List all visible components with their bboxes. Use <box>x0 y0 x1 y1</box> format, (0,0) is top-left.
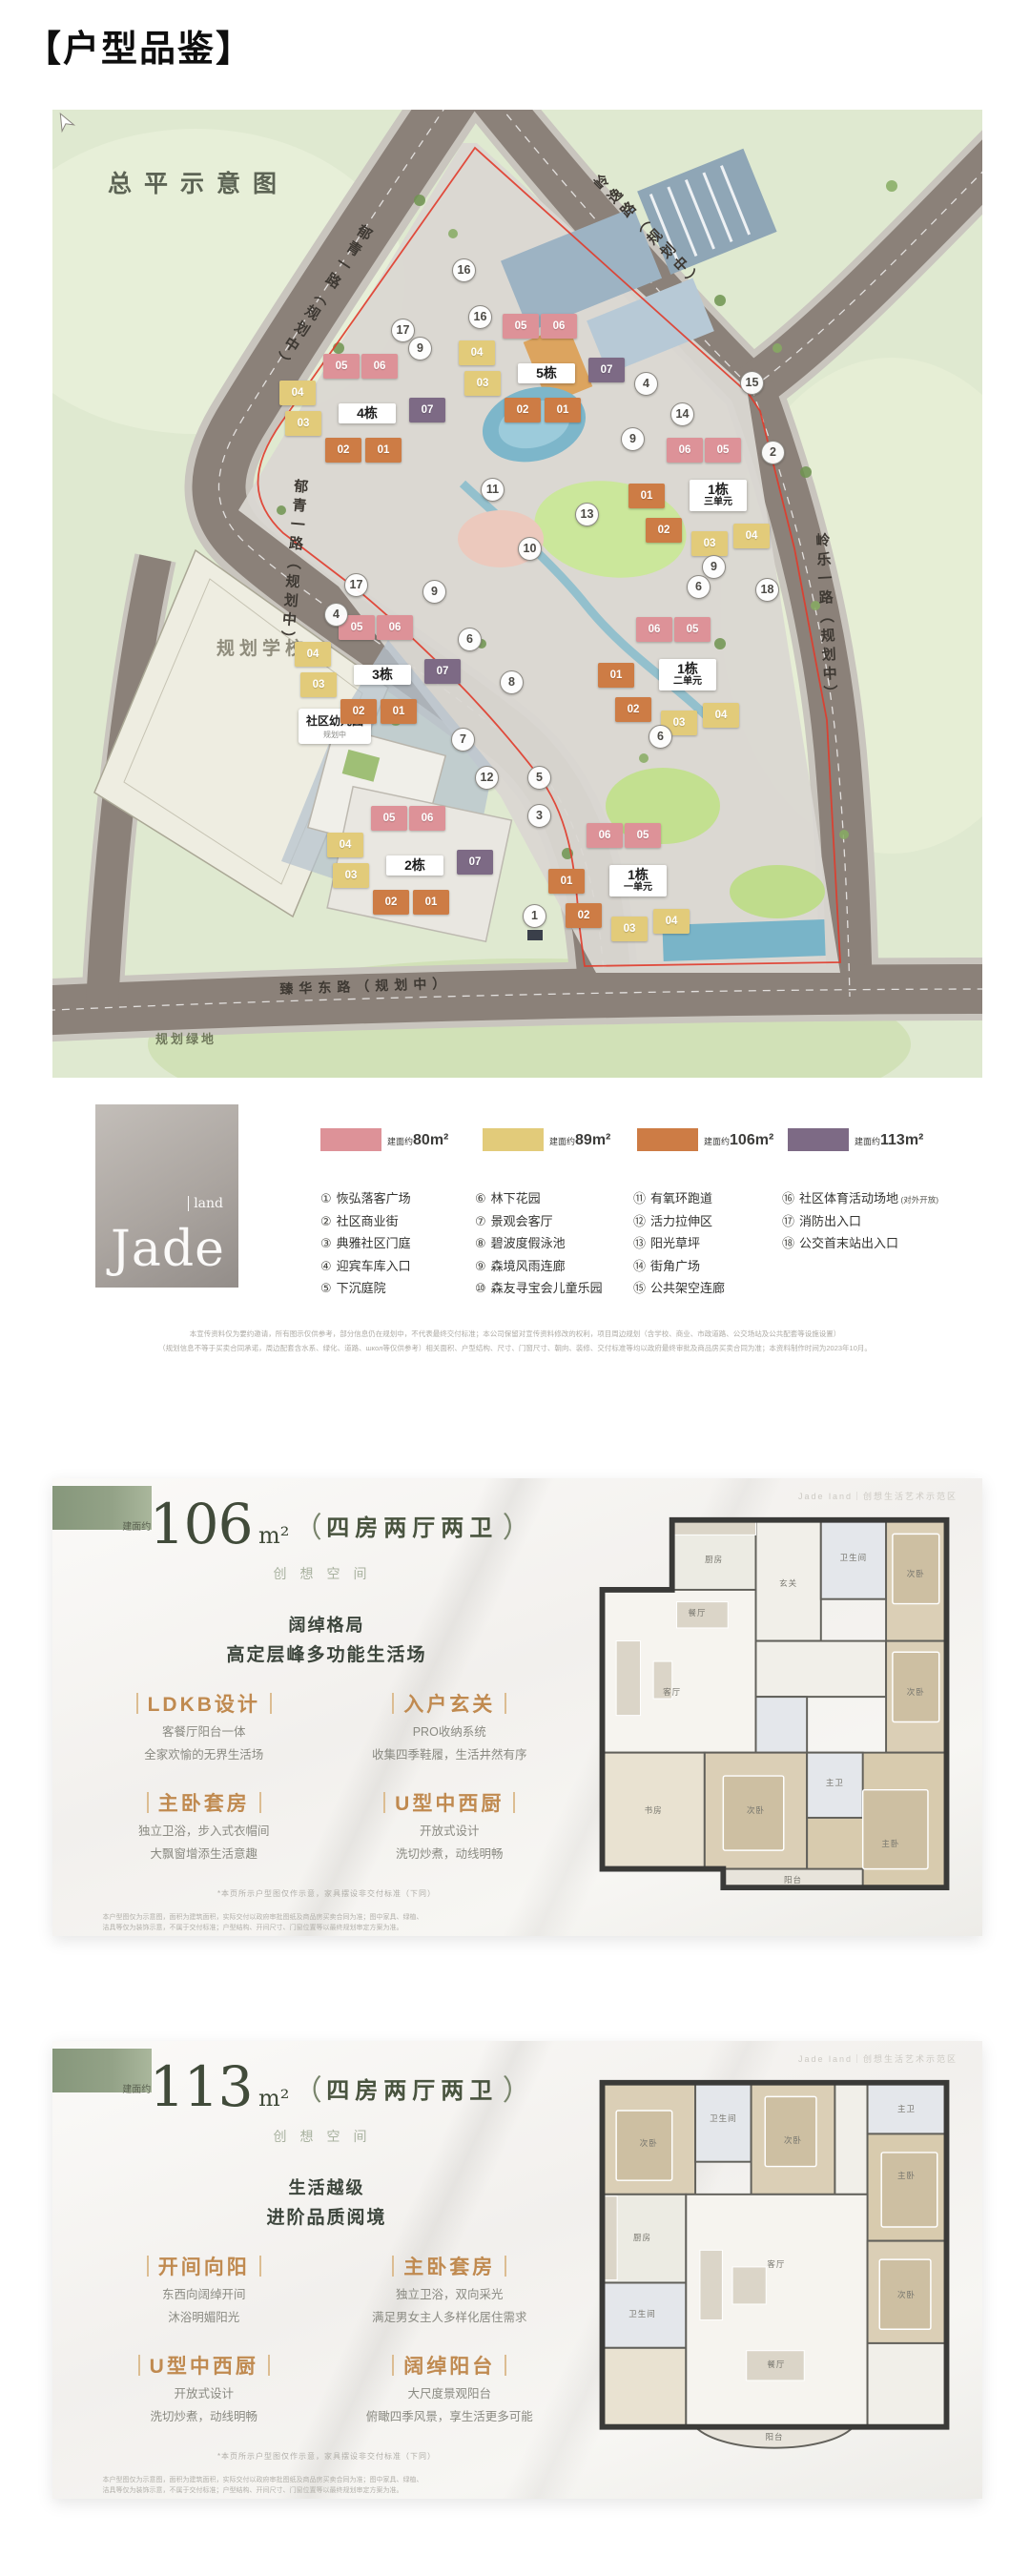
amenity-marker-10: 10 <box>518 537 542 561</box>
room-label-次卧: 次卧 <box>897 2289 916 2300</box>
legend-item-17: ⑰消防出入口 <box>782 1211 861 1229</box>
legend-item-12: ⑫活力拉伸区 <box>633 1211 712 1229</box>
unit-chip-03: 03 <box>285 411 321 436</box>
building-label: 1栋三单元 <box>690 480 747 511</box>
unit-chip-07: 07 <box>457 850 493 875</box>
legend-item-7: ⑦景观会客厅 <box>475 1211 553 1229</box>
unit-chip-03: 03 <box>300 672 337 697</box>
unit-chip-05: 05 <box>674 617 711 642</box>
building-label: 2栋 <box>386 855 443 876</box>
legend-item-4: ④迎宾车库入口 <box>320 1256 411 1274</box>
room-label-主卧: 主卧 <box>881 1838 899 1849</box>
amenity-marker-6: 6 <box>649 725 672 749</box>
room-label-书房: 书房 <box>645 1804 663 1816</box>
building-unit-name: 二单元 <box>663 676 712 688</box>
unit-chip-07: 07 <box>588 358 625 382</box>
unit-chip-04: 04 <box>703 703 739 728</box>
amenity-marker-4: 4 <box>324 603 348 627</box>
building-name: 1栋 <box>613 868 663 882</box>
spec-bracket-open: （ <box>294 2075 322 2107</box>
legend-disclaimer-1: 本宣传资料仅为要约邀请，所有图示仅供参考，部分信息仍在规划中，不代表最终交付标准… <box>105 1328 925 1341</box>
area-value: 113 <box>150 2054 253 2119</box>
unit-chip-06: 06 <box>636 617 672 642</box>
unit-chip-01: 01 <box>598 663 634 688</box>
unit-header: 建面约 106 m² （ 四房两厅两卫 ） <box>81 1492 572 1556</box>
unit-chip-03: 03 <box>333 863 369 888</box>
feature-kitchen: U型中西厨 开放式设计 洗切炒煮，动线明畅 <box>81 2351 327 2425</box>
room-label-阳台: 阳台 <box>784 1874 802 1886</box>
room-label-厨房: 厨房 <box>705 1554 723 1565</box>
unit-chip-05: 05 <box>503 314 539 339</box>
area-swatch-label: 建面约89m² <box>549 1132 610 1149</box>
area-swatch-label: 建面约113m² <box>855 1132 923 1149</box>
unit-chip-04: 04 <box>459 340 495 365</box>
amenity-marker-17: 17 <box>344 573 368 597</box>
unit-chip-01: 01 <box>628 484 665 508</box>
room-label-餐厅: 餐厅 <box>767 2359 785 2370</box>
card-note: *本页所示户型图仅作示意，家具摆设非交付标准（下同） <box>81 2451 572 2462</box>
unit-chip-04: 04 <box>653 909 690 934</box>
unit-chip-02: 02 <box>373 890 409 915</box>
area-label: 规划绿地 <box>155 1029 216 1047</box>
unit-card-113: Jade land｜创想生活艺术示范区 建面约 113 m² （ 四房两厅两卫 … <box>52 2041 982 2499</box>
unit-chip-04: 04 <box>279 381 316 405</box>
unit-chip-02: 02 <box>615 697 651 722</box>
amenity-marker-15: 15 <box>740 371 764 395</box>
legend-item-3: ③典雅社区门庭 <box>320 1233 411 1251</box>
legend-item-13: ⑬阳光草坪 <box>633 1233 700 1251</box>
building-name: 2栋 <box>390 858 440 873</box>
room-label-厨房: 厨房 <box>633 2232 651 2243</box>
building-name: 4栋 <box>342 406 392 421</box>
building-label: 3栋 <box>354 665 411 685</box>
unit-chip-06: 06 <box>667 438 703 463</box>
feature-foyer: 入户玄关 PRO收纳系统 收集四季鞋履，生活井然有序 <box>327 1689 573 1763</box>
room-label-阳台: 阳台 <box>765 2431 783 2442</box>
unit-chip-06: 06 <box>361 354 398 379</box>
unit-spec: 四房两厅两卫 <box>326 2078 498 2104</box>
area-swatch <box>483 1128 544 1151</box>
unit-subtitle: 创想空间 <box>81 2127 572 2146</box>
unit-chip-04: 04 <box>327 833 363 857</box>
amenity-marker-6: 6 <box>687 575 711 599</box>
unit-chip-01: 01 <box>545 398 581 422</box>
amenity-marker-7: 7 <box>451 728 475 752</box>
legend-item-1: ①恢弘落客广场 <box>320 1188 411 1206</box>
unit-chip-03: 03 <box>691 531 728 556</box>
site-plan-map: 总平示意图 郁青一路（规划中）郁青一路（规划中）岭逸路（规划中）岭乐一路（规划中… <box>52 110 982 1078</box>
unit-chip-01: 01 <box>381 699 417 724</box>
spec-bracket-open: （ <box>294 1513 322 1544</box>
amenity-marker-16: 16 <box>452 258 476 282</box>
room-label-次卧: 次卧 <box>784 2134 802 2146</box>
promo-page: 【户型品鉴】 <box>0 0 1030 2576</box>
room-label-主卫: 主卫 <box>897 2103 916 2114</box>
brand-logo-land: land <box>188 1196 223 1211</box>
building-unit-name: 一单元 <box>613 882 663 894</box>
legend-item-10: ⑩森友寻宝会儿童乐园 <box>475 1278 603 1296</box>
unit-chip-04: 04 <box>733 524 770 548</box>
page-title: 【户型品鉴】 <box>25 19 254 72</box>
legend-item-15: ⑮公共架空连廊 <box>633 1278 725 1296</box>
area-swatch-label: 建面约106m² <box>704 1132 773 1149</box>
unit-chip-02: 02 <box>325 438 361 463</box>
brand-logo: land Jade <box>95 1104 238 1288</box>
feature-balcony: 阔绰阳台 大尺度景观阳台 俯瞰四季风景，享生活更多可能 <box>327 2351 573 2425</box>
building-label: 1栋二单元 <box>659 659 716 690</box>
room-label-餐厅: 餐厅 <box>689 1607 707 1618</box>
unit-slogan-2: 进阶品质阅境 <box>81 2203 572 2229</box>
unit-chip-01: 01 <box>548 869 585 894</box>
amenity-marker-9: 9 <box>702 555 726 579</box>
room-label-次卧: 次卧 <box>907 1568 925 1579</box>
room-label-主卧: 主卧 <box>897 2170 916 2181</box>
room-label-卫生间: 卫生间 <box>628 2308 656 2319</box>
unit-chip-02: 02 <box>566 903 602 928</box>
legend-item-18: ⑱公交首末站出入口 <box>782 1233 898 1251</box>
floorplan-106: 厨房玄关卫生间次卧餐厅客厅次卧书房次卧主卫主卧阳台 <box>584 1501 965 1902</box>
legend-item-11: ⑪有氧环跑道 <box>633 1188 712 1206</box>
unit-card-106: Jade land｜创想生活艺术示范区 建面约 106 m² （ 四房两厅两卫 … <box>52 1478 982 1936</box>
spec-bracket-close: ） <box>503 1513 531 1544</box>
feature-kitchen: U型中西厨 开放式设计 洗切炒煮，动线明畅 <box>327 1788 573 1863</box>
unit-slogan-1: 生活越级 <box>81 2174 572 2199</box>
legend-item-6: ⑥林下花园 <box>475 1188 541 1206</box>
legend-item-8: ⑧碧波度假泳池 <box>475 1233 566 1251</box>
amenity-marker-6: 6 <box>458 628 482 651</box>
unit-slogan-2: 高定层峰多功能生活场 <box>81 1640 572 1666</box>
unit-chip-05: 05 <box>705 438 741 463</box>
room-label-卫生间: 卫生间 <box>710 2112 737 2124</box>
unit-chip-06: 06 <box>377 615 413 640</box>
unit-chip-01: 01 <box>413 890 449 915</box>
legend-disclaimer-2: （规划信息不等于买卖合同承诺，周边配套含水系、绿化、道路、школ等仅供参考）相… <box>105 1342 925 1355</box>
room-label-玄关: 玄关 <box>779 1577 797 1589</box>
unit-chip-02: 02 <box>646 518 682 543</box>
room-label-主卫: 主卫 <box>826 1777 844 1788</box>
unit-chip-02: 02 <box>340 699 377 724</box>
building-label: 5栋 <box>518 363 575 383</box>
unit-chip-05: 05 <box>323 354 360 379</box>
kindergarten-status: 规划中 <box>306 730 363 740</box>
brand-logo-jade: Jade <box>111 1221 225 1278</box>
amenity-marker-18: 18 <box>755 578 779 602</box>
room-label-次卧: 次卧 <box>747 1804 765 1816</box>
amenity-marker-9: 9 <box>408 337 432 361</box>
spec-bracket-close: ） <box>503 2075 531 2107</box>
site-plan-graphic <box>52 110 982 1078</box>
unit-subtitle: 创想空间 <box>81 1564 572 1583</box>
unit-chip-03: 03 <box>464 371 501 396</box>
legend-item-5: ⑤下沉庭院 <box>320 1278 386 1296</box>
building-name: 5栋 <box>522 366 571 381</box>
amenity-marker-12: 12 <box>475 766 499 790</box>
amenity-marker-3: 3 <box>527 804 551 828</box>
building-name: 1栋 <box>693 483 743 497</box>
unit-chip-02: 02 <box>505 398 541 422</box>
unit-chip-07: 07 <box>409 398 445 422</box>
building-label: 1栋一单元 <box>609 865 667 896</box>
room-label-次卧: 次卧 <box>640 2137 658 2149</box>
unit-chip-07: 07 <box>424 659 461 684</box>
amenity-marker-4: 4 <box>634 372 658 396</box>
amenity-marker-8: 8 <box>500 670 524 694</box>
map-title: 总平示意图 <box>108 165 289 199</box>
area-swatch <box>637 1128 698 1151</box>
unit-spec: 四房两厅两卫 <box>326 1515 498 1541</box>
amenity-marker-2: 2 <box>761 441 785 464</box>
card-fine-print: 本户型图仅为示意图，面积为建筑面积，实际交付以政府审批图纸及商品房买卖合同为准；… <box>103 2475 551 2498</box>
floorplan-113: 次卧卫生间次卧主卫主卧厨房卫生间客厅次卧餐厅阳台 <box>584 2064 965 2464</box>
unit-chip-06: 06 <box>587 823 623 848</box>
room-label-次卧: 次卧 <box>907 1686 925 1698</box>
unit-header: 建面约 113 m² （ 四房两厅两卫 ） <box>81 2054 572 2119</box>
area-unit: m² <box>258 1522 289 1549</box>
card-fine-print: 本户型图仅为示意图，面积为建筑面积，实际交付以政府审批图纸及商品房买卖合同为准；… <box>103 1912 551 1935</box>
building-label: 4栋 <box>339 403 396 423</box>
legend-item-9: ⑨森境风雨连廊 <box>475 1256 566 1274</box>
amenity-marker-1: 1 <box>523 904 546 928</box>
area-unit: m² <box>258 2085 289 2112</box>
compass-icon <box>52 110 77 134</box>
area-prefix: 建面约 <box>122 2085 145 2097</box>
unit-chip-04: 04 <box>295 642 331 667</box>
area-swatch <box>788 1128 849 1151</box>
unit-chip-05: 05 <box>625 823 661 848</box>
feature-grid: 开间向阳 东西向阔绰开间 沐浴明媚阳光 主卧套房 独立卫浴，双向采光 满足男女主… <box>81 2252 572 2426</box>
room-label-卫生间: 卫生间 <box>840 1552 868 1563</box>
legend-item-16: ⑯社区体育活动场地 (对外开放) <box>782 1188 938 1206</box>
room-label-客厅: 客厅 <box>663 1686 681 1698</box>
amenity-marker-5: 5 <box>527 766 551 790</box>
unit-chip-03: 03 <box>611 917 648 941</box>
amenity-marker-11: 11 <box>481 478 505 502</box>
amenity-marker-16: 16 <box>468 305 492 329</box>
unit-slogan-1: 阔绰格局 <box>81 1612 572 1637</box>
amenity-marker-9: 9 <box>422 580 446 604</box>
amenity-marker-14: 14 <box>670 402 694 426</box>
feature-ldkb: LDKB设计 客餐厅阳台一体 全家欢愉的无界生活场 <box>81 1689 327 1763</box>
feature-master-suite: 主卧套房 独立卫浴，步入式衣帽间 大飘窗增添生活意趣 <box>81 1788 327 1863</box>
feature-sunny-bay: 开间向阳 东西向阔绰开间 沐浴明媚阳光 <box>81 2252 327 2326</box>
area-swatch <box>320 1128 381 1151</box>
amenity-marker-9: 9 <box>621 427 645 451</box>
card-note: *本页所示户型图仅作示意，家具摆设非交付标准（下同） <box>81 1888 572 1899</box>
unit-chip-06: 06 <box>409 806 445 831</box>
amenity-marker-13: 13 <box>575 503 599 526</box>
building-name: 3栋 <box>358 668 407 682</box>
area-prefix: 建面约 <box>122 1522 145 1535</box>
legend-item-14: ⑭街角广场 <box>633 1256 700 1274</box>
building-name: 1栋 <box>663 662 712 676</box>
building-unit-name: 三单元 <box>693 497 743 508</box>
unit-chip-01: 01 <box>365 438 402 463</box>
area-swatch-label: 建面约80m² <box>387 1132 448 1149</box>
unit-chip-06: 06 <box>541 314 577 339</box>
room-label-客厅: 客厅 <box>767 2258 785 2270</box>
legend-item-2: ②社区商业街 <box>320 1211 399 1229</box>
feature-master-suite: 主卧套房 独立卫浴，双向采光 满足男女主人多样化居住需求 <box>327 2252 573 2326</box>
feature-grid: LDKB设计 客餐厅阳台一体 全家欢愉的无界生活场 入户玄关 PRO收纳系统 收… <box>81 1689 572 1864</box>
unit-chip-05: 05 <box>371 806 407 831</box>
area-value: 106 <box>150 1492 253 1556</box>
